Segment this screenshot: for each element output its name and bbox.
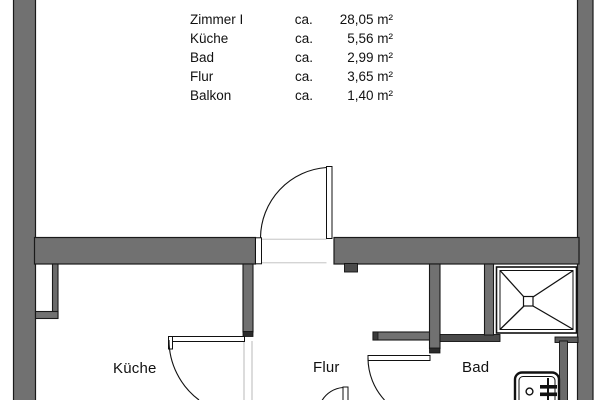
door-flur-arc <box>368 358 385 400</box>
flur-bad-wall <box>430 264 441 349</box>
washbasin-icon <box>515 373 559 400</box>
niche-right-wall <box>485 264 494 335</box>
wall-right <box>578 0 594 400</box>
door-bottom <box>322 387 348 400</box>
flur-stub-cap <box>373 332 378 340</box>
shaft-x-symbol <box>497 267 577 333</box>
legend-area-value: 1,40 m² <box>340 86 393 105</box>
door-kueche <box>169 337 245 400</box>
legend-ca-label: ca. <box>295 48 340 67</box>
room-label-kueche: Küche <box>113 360 157 377</box>
floor-plan: Küche Flur Bad Zimmer I ca. 28,05 m² Küc… <box>0 0 600 400</box>
legend-area-value: 2,99 m² <box>340 48 393 67</box>
door-zimmer-leaf <box>327 167 333 239</box>
door-kueche-leaf <box>169 337 245 342</box>
kueche-partition-wall <box>243 264 253 332</box>
legend-area-value: 5,56 m² <box>340 29 393 48</box>
legend-ca-label: ca. <box>295 29 340 48</box>
legend-row-bad: Bad ca. 2,99 m² <box>190 48 393 67</box>
door-zimmer-arc <box>261 168 327 238</box>
washbasin-drain <box>526 388 533 395</box>
flur-stub-wall <box>373 332 430 340</box>
door-zimmer <box>256 167 333 264</box>
room-label-flur: Flur <box>313 359 340 376</box>
door-kueche-arc <box>169 340 199 400</box>
legend-area-value: 3,65 m² <box>340 67 393 86</box>
legend-room-name: Küche <box>190 29 295 48</box>
door-bottom-arc <box>322 388 343 400</box>
legend-ca-label: ca. <box>295 86 340 105</box>
kueche-partition-cap <box>243 332 253 337</box>
legend-row-balkon: Balkon ca. 1,40 m² <box>190 86 393 105</box>
legend-ca-label: ca. <box>295 67 340 86</box>
legend-room-name: Zimmer I <box>190 10 295 29</box>
band-notch <box>345 264 358 273</box>
door-flur <box>368 356 430 400</box>
legend-area-value: 28,05 m² <box>340 10 393 29</box>
washbasin-tap-bar-bottom <box>540 393 557 397</box>
legend-room-name: Bad <box>190 48 295 67</box>
shaft-center-square <box>524 297 534 307</box>
flur-bad-wall-cap <box>430 348 441 353</box>
washbasin-tap-bar-top <box>540 385 557 389</box>
legend-row-kueche: Küche ca. 5,56 m² <box>190 29 393 48</box>
wall-left <box>14 0 36 400</box>
door-bottom-leaf <box>343 387 348 400</box>
legend-row-flur: Flur ca. 3,65 m² <box>190 67 393 86</box>
door-flur-leaf <box>368 356 430 361</box>
area-legend: Zimmer I ca. 28,05 m² Küche ca. 5,56 m² … <box>190 10 393 105</box>
duct-niche-wall-stub <box>36 312 59 319</box>
legend-room-name: Balkon <box>190 86 295 105</box>
room-label-bad: Bad <box>462 359 489 376</box>
legend-ca-label: ca. <box>295 10 340 29</box>
legend-row-zimmer: Zimmer I ca. 28,05 m² <box>190 10 393 29</box>
legend-room-name: Flur <box>190 67 295 86</box>
duct-niche-wall-vertical <box>53 264 59 317</box>
wall-band-left <box>35 238 256 265</box>
door-zimmer-jamb <box>256 238 262 264</box>
bad-l-wall-vertical <box>560 341 568 400</box>
wall-band-right <box>334 238 579 265</box>
